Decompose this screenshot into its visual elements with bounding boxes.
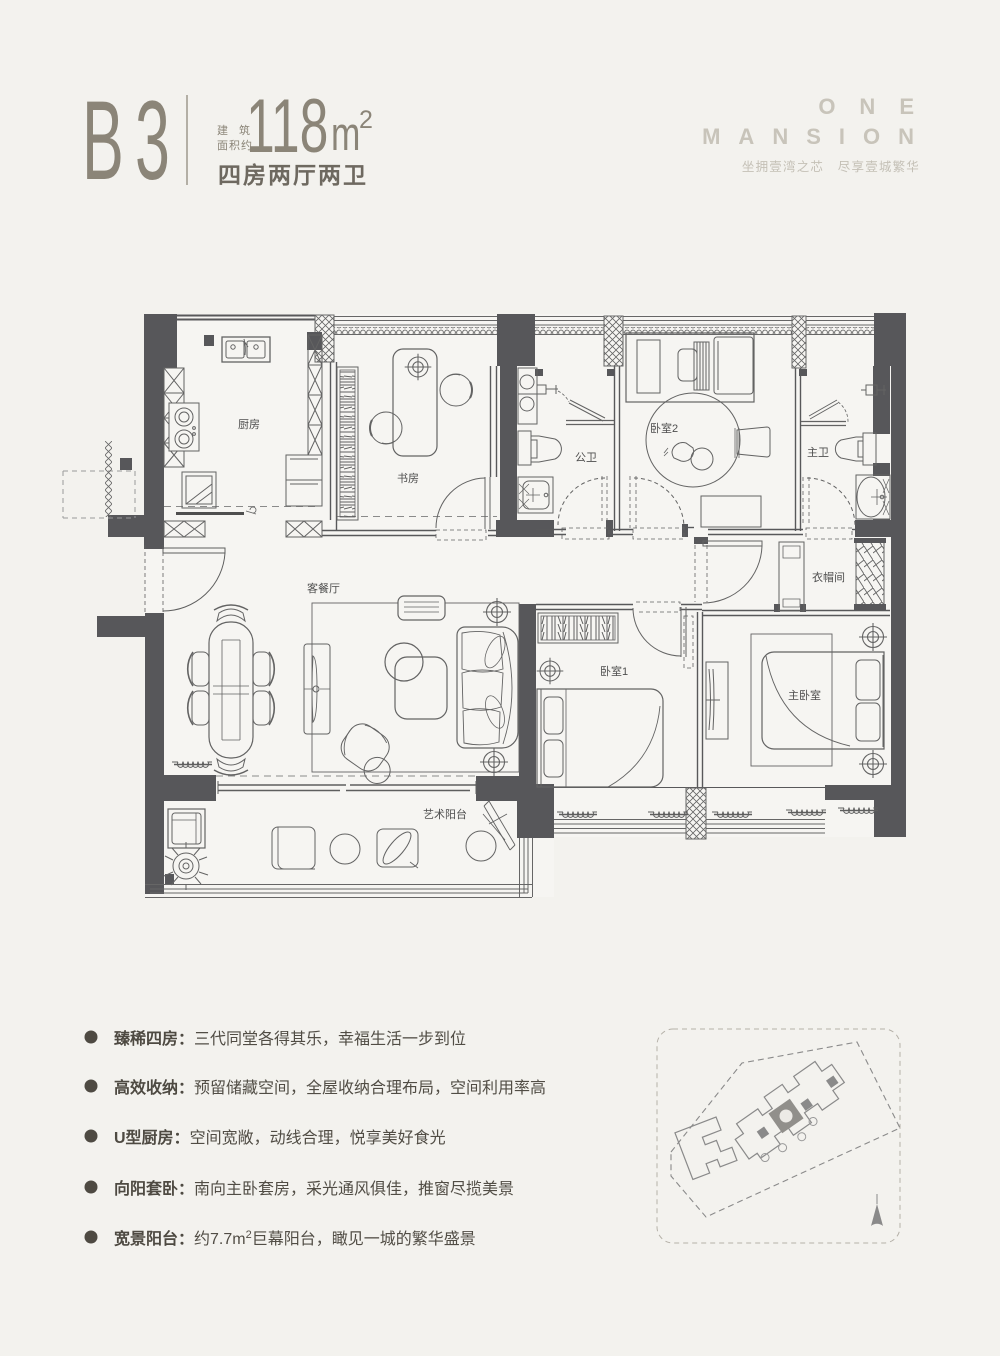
svg-text:衣帽间: 衣帽间: [812, 570, 845, 584]
svg-text:四房两厅两卫: 四房两厅两卫: [218, 162, 368, 188]
svg-text:主卧室: 主卧室: [788, 688, 821, 702]
svg-text:宽景阳台：约7.7m2巨幕阳台，瞰见一城的繁华盛景: 宽景阳台：约7.7m2巨幕阳台，瞰见一城的繁华盛景: [114, 1229, 476, 1248]
svg-text:主卫: 主卫: [807, 446, 829, 459]
svg-text:向阳套卧：南向主卧套房，采光通风俱佳，推窗尽揽美景: 向阳套卧：南向主卧套房，采光通风俱佳，推窗尽揽美景: [114, 1179, 514, 1198]
svg-text:m: m: [331, 107, 360, 160]
svg-text:U型厨房：空间宽敞，动线合理，悦享美好食光: U型厨房：空间宽敞，动线合理，悦享美好食光: [114, 1128, 446, 1147]
svg-text:客餐厅: 客餐厅: [307, 581, 340, 595]
svg-text:高效收纳：预留储藏空间，全屋收纳合理布局，空间利用率高: 高效收纳：预留储藏空间，全屋收纳合理布局，空间利用率高: [114, 1078, 546, 1097]
svg-text:2: 2: [359, 106, 373, 134]
svg-text:118: 118: [246, 83, 328, 168]
svg-text:卧室1: 卧室1: [600, 664, 628, 678]
svg-text:书房: 书房: [397, 472, 419, 485]
svg-text:ONE: ONE: [818, 94, 938, 119]
svg-text:公卫: 公卫: [575, 452, 597, 464]
svg-text:MANSION: MANSION: [702, 124, 932, 149]
svg-text:厨房: 厨房: [238, 418, 260, 431]
svg-text:艺术阳台: 艺术阳台: [423, 807, 467, 821]
svg-text:臻稀四房：三代同堂各得其乐，幸福生活一步到位: 臻稀四房：三代同堂各得其乐，幸福生活一步到位: [114, 1029, 466, 1048]
svg-text:卧室2: 卧室2: [650, 421, 678, 435]
svg-text:坐拥壹湾之芯 尽享壹城繁华: 坐拥壹湾之芯 尽享壹城繁华: [742, 159, 920, 174]
svg-text:B3: B3: [82, 79, 181, 204]
